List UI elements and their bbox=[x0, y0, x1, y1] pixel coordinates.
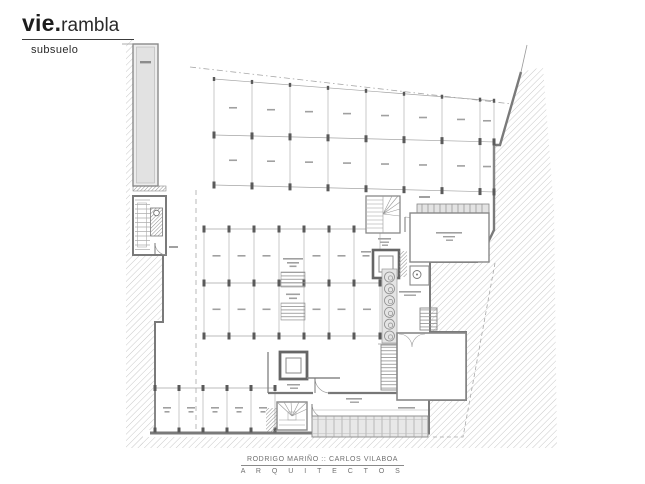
parking-grid-north bbox=[213, 77, 496, 195]
parking-grid-central bbox=[203, 226, 382, 340]
southeast-room bbox=[397, 333, 466, 400]
studio-label: A R Q U I T E C T O S bbox=[0, 468, 645, 475]
page: { "header": { "brand_bold": "vie.", "bra… bbox=[0, 0, 645, 484]
service-stair bbox=[420, 308, 437, 330]
duct-fan-icon bbox=[154, 210, 160, 216]
logo-vie: vie. bbox=[22, 10, 61, 36]
label-smudge bbox=[419, 196, 430, 198]
label-smudge bbox=[169, 246, 178, 248]
ramp-up-strip bbox=[381, 345, 397, 390]
architect-signature: RODRIGO MARIÑO :: CARLOS VILABOA A R Q U… bbox=[0, 448, 645, 475]
label-smudge bbox=[287, 384, 300, 389]
project-logo: vie.rambla bbox=[22, 10, 134, 40]
plant-room bbox=[410, 213, 489, 262]
title-block: vie.rambla subsuelo bbox=[22, 10, 134, 56]
floor-plan-drawing bbox=[0, 0, 645, 484]
door-arc bbox=[315, 378, 330, 393]
exit-ramp bbox=[312, 398, 428, 437]
ramp-label-smudge bbox=[140, 61, 151, 63]
label-smudge bbox=[399, 291, 421, 296]
architect-names: RODRIGO MARIÑO :: CARLOS VILABOA bbox=[241, 456, 404, 466]
west-staircase bbox=[133, 196, 178, 255]
level-label: subsuelo bbox=[22, 40, 134, 56]
logo-rambla: rambla bbox=[61, 15, 119, 36]
parking-row-south bbox=[154, 385, 277, 433]
